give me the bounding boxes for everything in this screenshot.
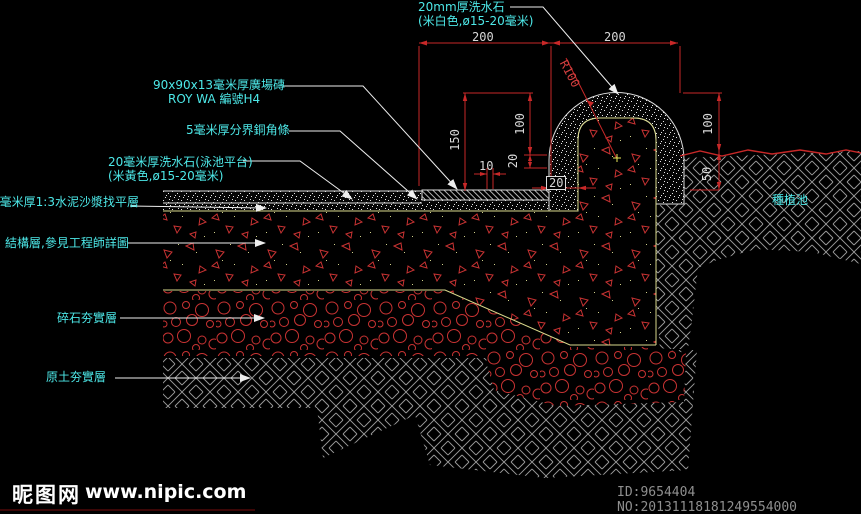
label-gravel-layer: 碎石夯實層 [57,312,117,325]
watermark-site-name: 昵图网 [12,479,81,509]
label-topstone-line2: (米白色,ø15-20毫米) [418,15,533,28]
watermark-site-url: www.nipic.com [85,481,246,503]
dim-soil-depth-right: 50 [701,167,713,181]
label-copper-strip: 5毫米厚分界銅角條 [186,124,290,137]
soil-region-planting [656,151,861,349]
dim-offset-vertical: 20 [507,154,519,168]
watermark-id-number: ID:9654404 NO:20131118181249554000 [617,485,861,514]
dim-joint-width: 10 [479,160,493,172]
label-soil-layer: 原土夯實層 [46,371,106,384]
label-topstone-line1: 20mm厚洗水石 [418,1,505,14]
label-leveling-layer: 0毫米厚1:3水泥沙漿找平層 [0,196,139,209]
dim-span-left: 200 [472,31,494,43]
tile-strip [422,190,553,200]
bottom-red-strip [0,509,255,511]
label-deck-washstone-line2: (米黃色,ø15-20毫米) [108,170,223,183]
dim-span-right: 200 [604,31,626,43]
dim-coping-thickness: 20 [546,176,566,190]
dim-height-left: 150 [449,129,461,151]
cad-drawing-canvas: 20mm厚洗水石 (米白色,ø15-20毫米) 90x90x13毫米厚廣場磚 R… [0,0,861,514]
label-structure-layer: 結構層,參見工程師詳圖 [5,237,129,250]
section-drawing [0,0,861,514]
label-tile-line2: ROY WA 編號H4 [168,93,260,106]
label-tile-line1: 90x90x13毫米厚廣場磚 [153,79,285,92]
dim-height-arch-right: 100 [702,113,714,135]
label-planting-area: 種植池 [772,194,808,207]
dim-height-arch-left: 100 [514,113,526,135]
label-deck-washstone-line1: 20毫米厚洗水石(泳池平台) [108,156,253,169]
